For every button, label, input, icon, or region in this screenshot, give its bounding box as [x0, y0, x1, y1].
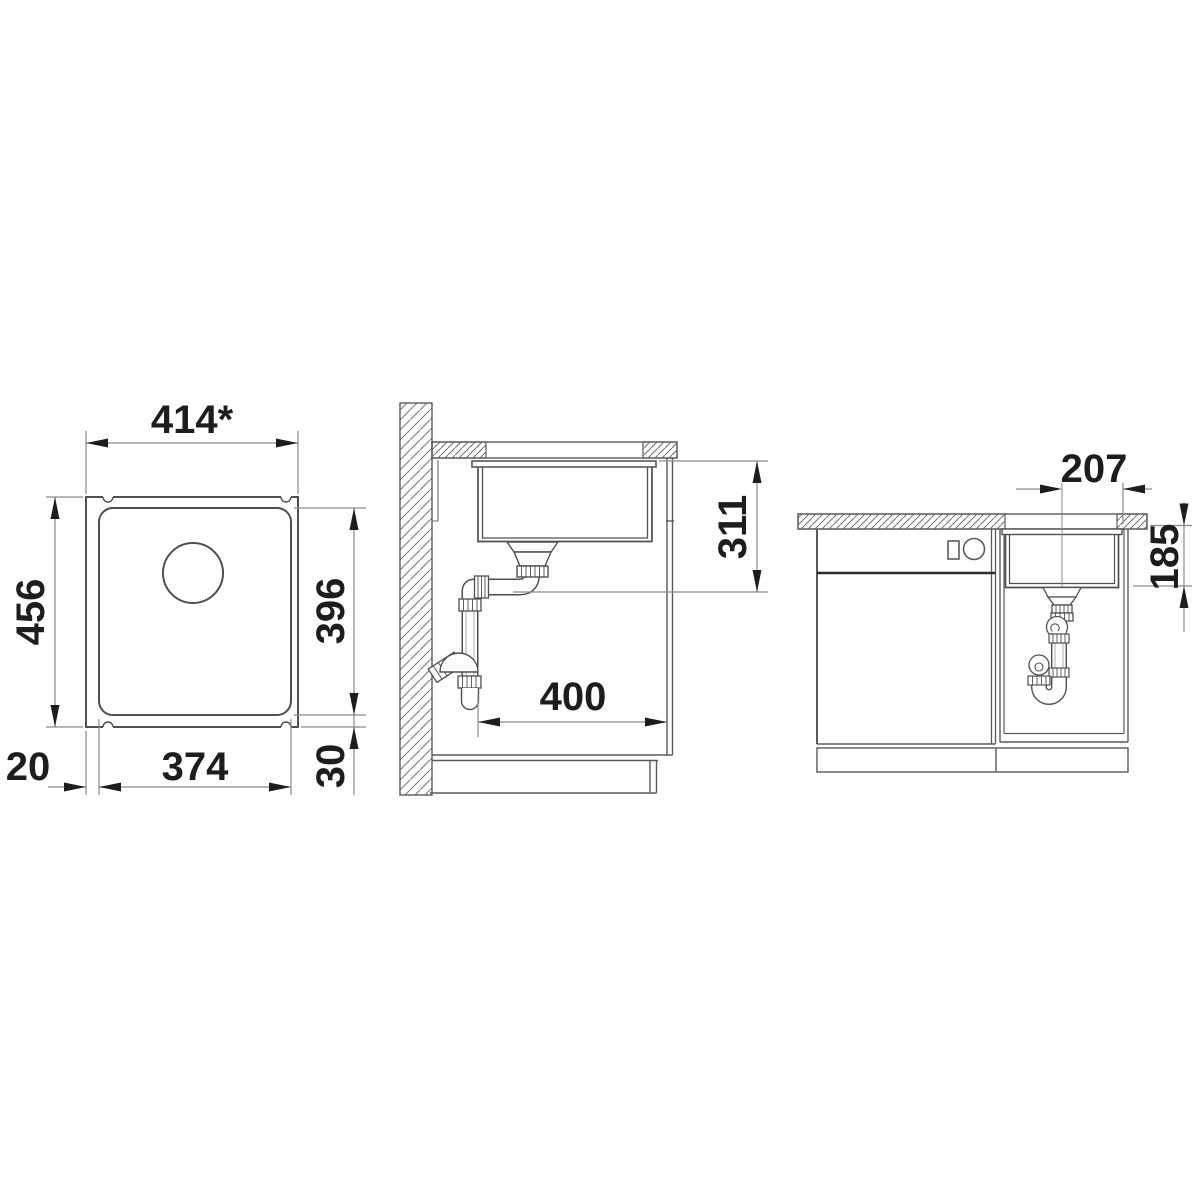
plinth [817, 748, 1128, 772]
dim-label-bowl-inner-depth: 185 [1143, 524, 1187, 591]
section-view: 311 400 [400, 403, 768, 795]
appliance-knob-icon [964, 539, 985, 560]
dim-label-rim-left: 20 [6, 745, 51, 789]
trap-bottom-cap [462, 688, 479, 710]
wall-rail [432, 460, 438, 521]
pipe-coupling [475, 576, 489, 598]
appliance-cabinet [817, 529, 996, 744]
dim-overall-width: 414* [86, 398, 298, 494]
technical-drawing: 414* 456 396 30 20 374 [0, 0, 1200, 1200]
dim-label-overall-depth: 456 [9, 579, 53, 646]
bowl-outline [99, 508, 291, 715]
strainer-section [507, 542, 558, 577]
dim-overall-depth: 456 [9, 497, 83, 727]
bowl-section-outer [478, 467, 652, 542]
dim-label-bowl-width: 374 [162, 745, 229, 789]
sink-rim-section [472, 461, 656, 467]
dim-label-install-height: 311 [711, 495, 755, 560]
dim-rim-bottom: 30 [301, 715, 366, 795]
dim-label-clearance: 400 [540, 675, 607, 719]
fixing-notches [103, 496, 291, 729]
drain-pipework-section [428, 542, 558, 710]
top-view: 414* 456 396 30 20 374 [6, 398, 366, 795]
sink-outer-outline [86, 497, 298, 727]
drawing-canvas: 414* 456 396 30 20 374 [0, 0, 1200, 1200]
bowl-section-inner [483, 467, 648, 538]
front-view: 207 185 [798, 447, 1192, 772]
dim-install-height: 311 [513, 461, 768, 592]
drain-pipework-front [1028, 588, 1081, 698]
dim-label-overall-width: 414* [151, 398, 234, 442]
dim-label-rim-bottom: 30 [309, 744, 353, 789]
dim-label-bowl-depth: 396 [309, 578, 353, 645]
appliance-display-icon [948, 541, 959, 559]
wall-section [400, 403, 432, 795]
pipe-coupling [459, 599, 481, 611]
dim-label-drain-offset: 207 [1061, 447, 1128, 491]
dim-drain-offset: 207 [1016, 447, 1152, 524]
pipe-coupling [458, 676, 481, 688]
dim-rim-left-and-bowl-width: 20 374 [6, 719, 291, 795]
drain-hole [163, 543, 223, 603]
dim-bowl-depth: 396 [294, 508, 366, 715]
dim-clearance: 400 [478, 675, 667, 737]
